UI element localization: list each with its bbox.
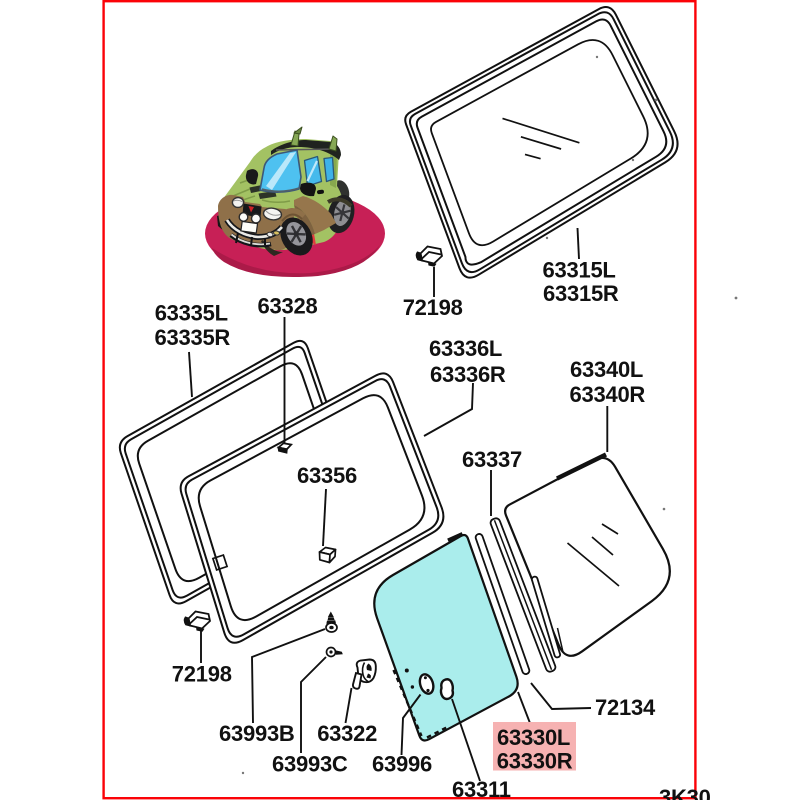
svg-text:63311: 63311	[452, 777, 511, 800]
svg-text:72198: 72198	[172, 662, 232, 687]
svg-text:63322: 63322	[317, 721, 377, 746]
svg-text:63337: 63337	[462, 447, 522, 472]
svg-text:63340L: 63340L	[570, 357, 643, 382]
svg-text:63340R: 63340R	[570, 382, 646, 407]
svg-text:63315L: 63315L	[543, 258, 616, 283]
svg-text:63356: 63356	[297, 463, 357, 488]
svg-text:3K30: 3K30	[659, 785, 711, 800]
svg-text:63996: 63996	[372, 752, 432, 777]
svg-text:63330L: 63330L	[497, 725, 570, 750]
svg-text:63336R: 63336R	[430, 362, 506, 387]
svg-text:63335R: 63335R	[155, 325, 231, 350]
svg-text:63315R: 63315R	[543, 281, 619, 306]
svg-text:63330R: 63330R	[497, 748, 573, 773]
svg-text:72134: 72134	[595, 695, 656, 720]
svg-text:63993B: 63993B	[219, 721, 295, 746]
svg-text:63336L: 63336L	[429, 336, 502, 361]
svg-text:72198: 72198	[403, 295, 463, 320]
svg-text:63335L: 63335L	[155, 301, 228, 326]
svg-text:63328: 63328	[258, 294, 318, 319]
svg-text:63993C: 63993C	[272, 752, 348, 777]
